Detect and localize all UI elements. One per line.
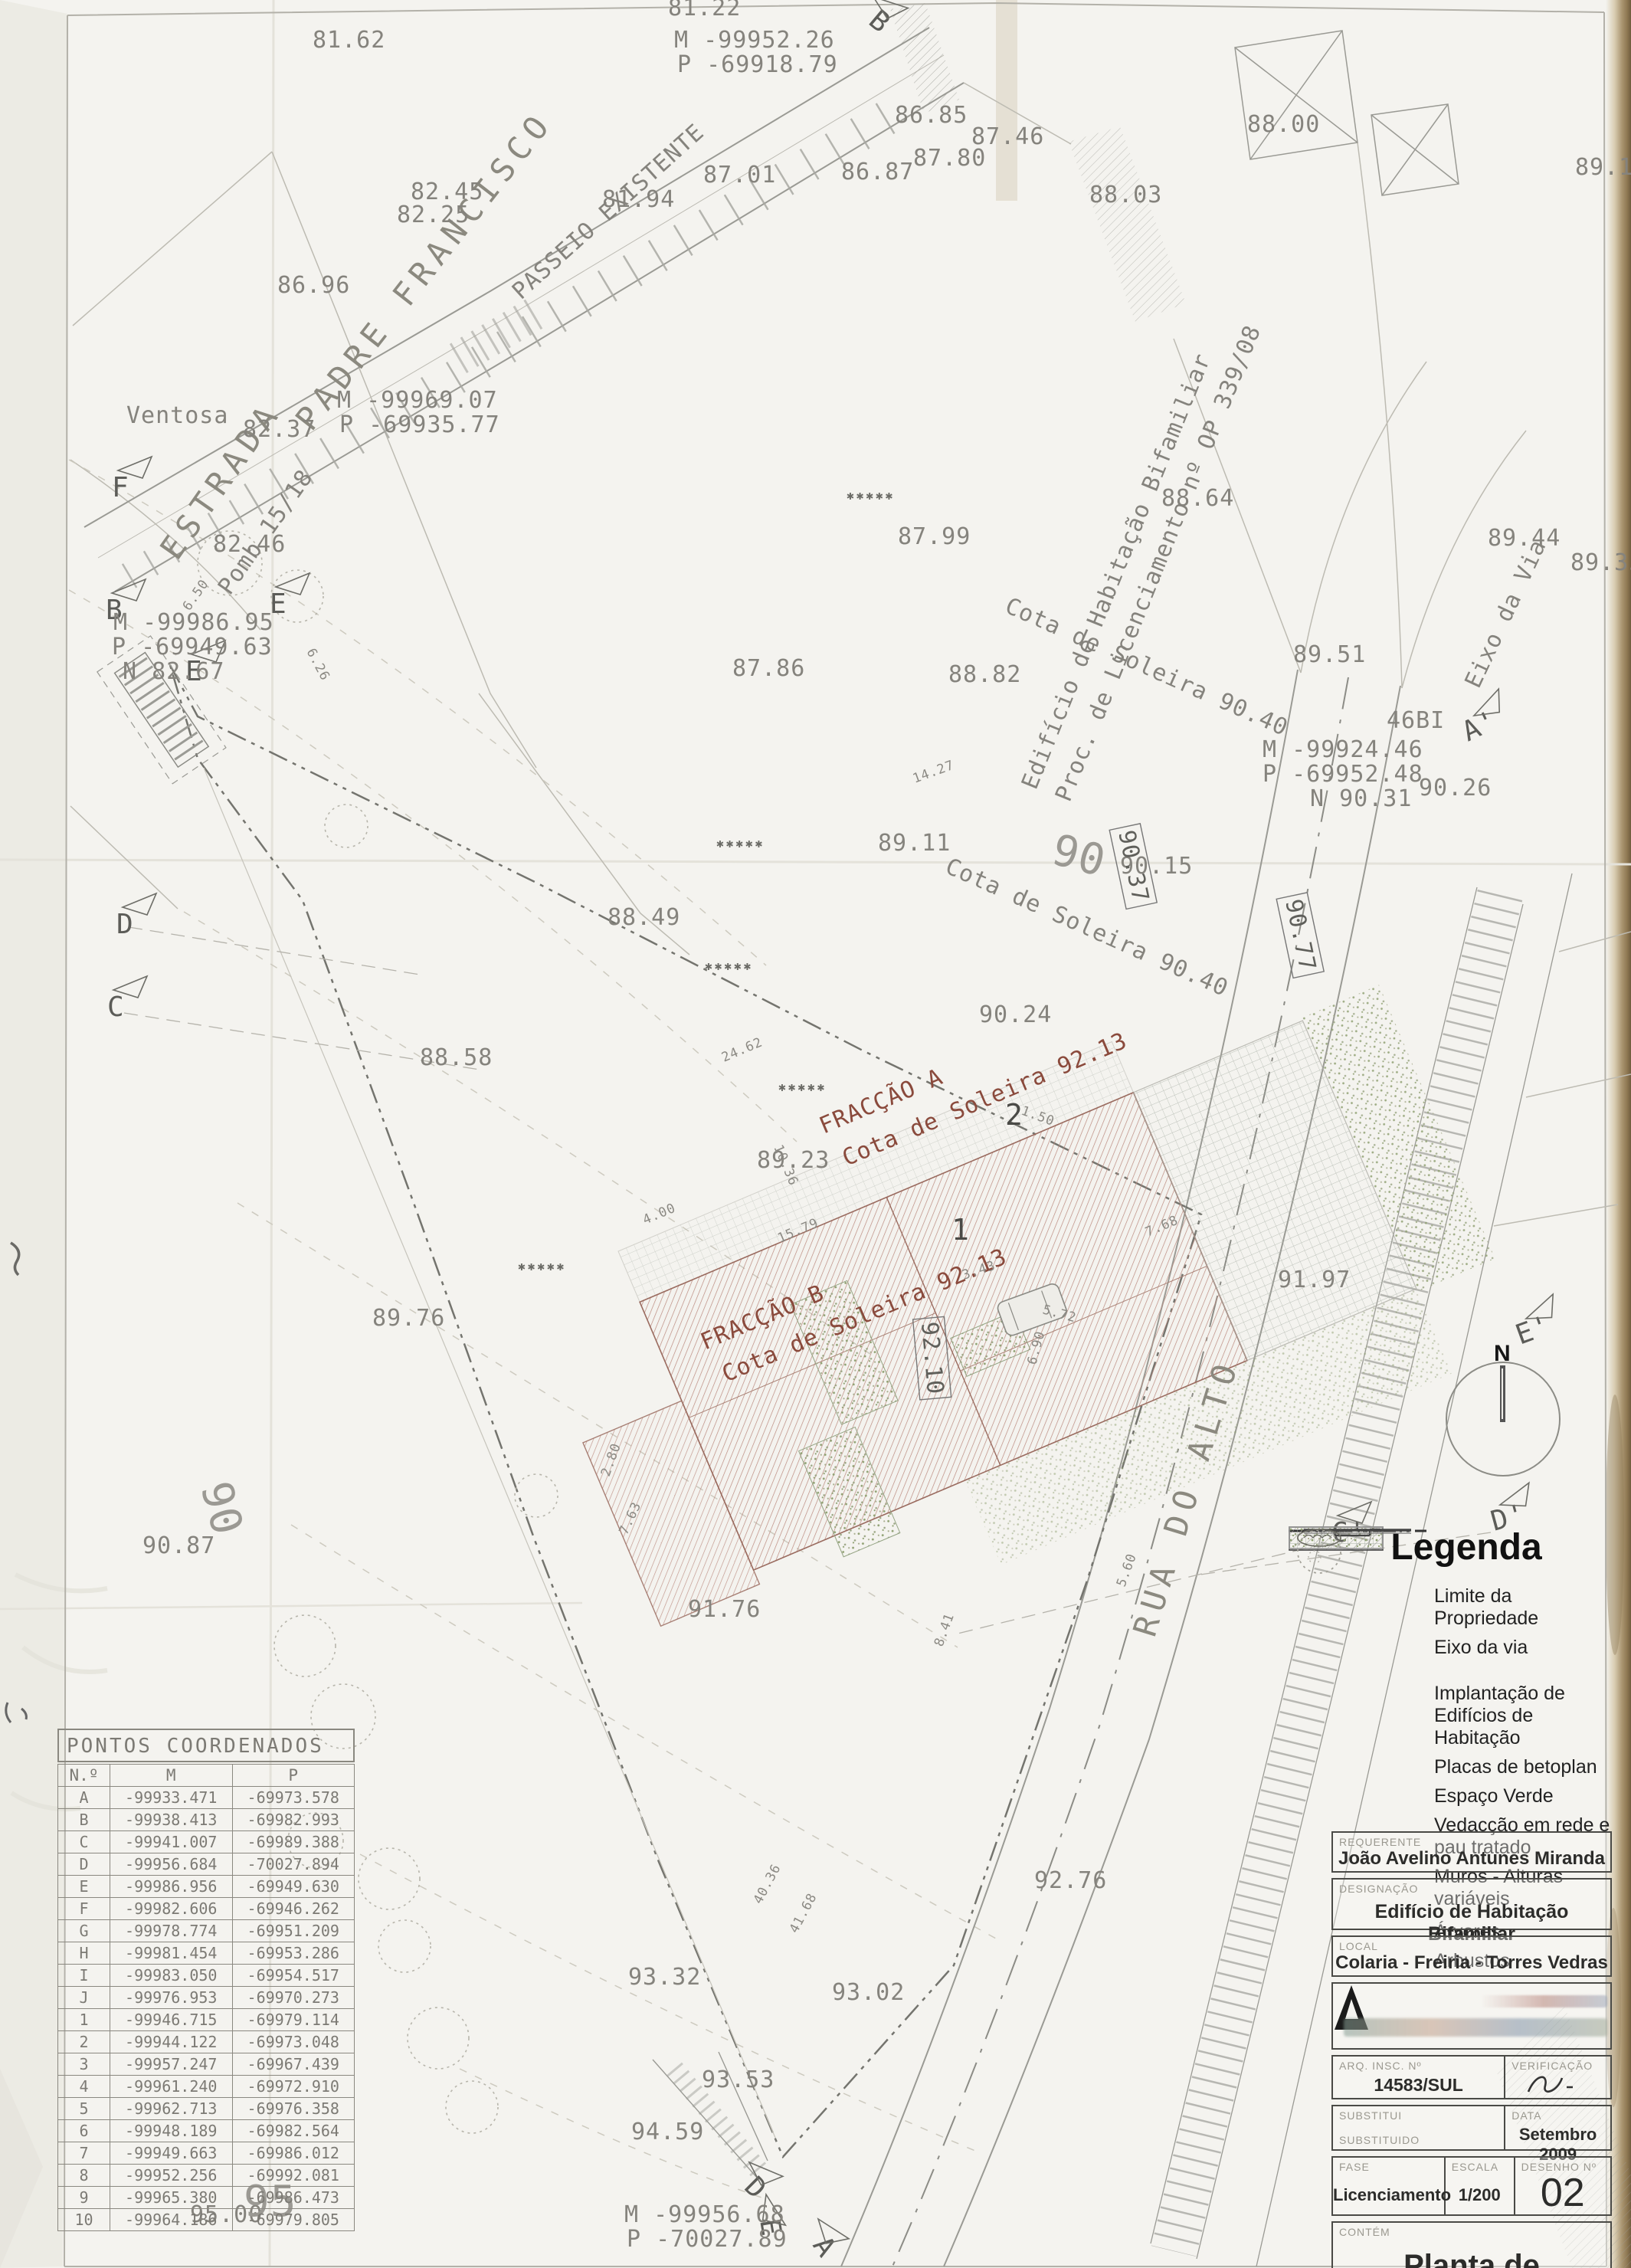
coord-p: -69967.439 (232, 2053, 355, 2076)
coord-m: -99976.953 (110, 1987, 233, 2009)
col-header-p: P (232, 1765, 355, 1787)
plan-label: 2 (1005, 1098, 1023, 1132)
plan-label: 86.85 (895, 102, 968, 129)
legend-item-label: Espaço Verde (1434, 1785, 1554, 1808)
architect-logo-band (1331, 1982, 1612, 2050)
arq-insc-value: 14583/SUL (1333, 2075, 1504, 2096)
plan-label: ✱✱✱✱✱ (518, 1259, 566, 1273)
field-label: CONTÉM (1339, 2226, 1390, 2238)
point-id: G (58, 1920, 110, 1942)
field-label: ARQ. INSC. Nº (1339, 2060, 1422, 2072)
plan-label: 46BI (1387, 707, 1445, 734)
plan-label: 89.76 (372, 1305, 445, 1332)
coordinate-table: PONTOS COORDENADOS N.º M P A-99933.471-6… (57, 1729, 355, 2231)
coord-m: -99964.186 (110, 2209, 233, 2231)
plan-label: 87.86 (732, 655, 805, 682)
table-row: D-99956.684-70027.894 (58, 1853, 355, 1876)
coord-p: -69953.286 (232, 1942, 355, 1965)
plan-label: 81.94 (602, 186, 675, 213)
titleblock-designacao: DESIGNAÇÃO Edifício de Habitação Bifamil… (1331, 1878, 1612, 1930)
table-row: B-99938.413-69982.993 (58, 1809, 355, 1831)
plan-label: P -69918.79 (677, 51, 838, 78)
requerente-value: João Avelino Antunes Miranda (1333, 1848, 1610, 1870)
coord-p: -69982.993 (232, 1809, 355, 1831)
titleblock-local: LOCAL Colaria - Freiria - Torres Vedras (1331, 1935, 1612, 1977)
coord-p: -70027.894 (232, 1853, 355, 1876)
coord-m: -99965.380 (110, 2187, 233, 2209)
coord-m: -99962.713 (110, 2098, 233, 2120)
coord-p: -69949.630 (232, 1876, 355, 1898)
coord-p: -69976.358 (232, 2098, 355, 2120)
coord-m: -99933.471 (110, 1787, 233, 1809)
legend-item-limite: Limite da Propriedade (1289, 1585, 1613, 1630)
plan-label: ✱✱✱✱✱ (716, 836, 765, 850)
point-id: I (58, 1965, 110, 1987)
coord-p: -69982.564 (232, 2120, 355, 2142)
plan-label: 82.45 (411, 179, 483, 205)
point-id: D (58, 1853, 110, 1876)
plan-label: 92.76 (1034, 1867, 1107, 1894)
plan-label: 90.26 (1419, 775, 1492, 801)
table-row: E-99986.956-69949.630 (58, 1876, 355, 1898)
page-title: Planta de Implantação (1333, 2249, 1610, 2268)
coord-m: -99948.189 (110, 2120, 233, 2142)
table-row: 4-99961.240-69972.910 (58, 2076, 355, 2098)
coord-m: -99986.956 (110, 1876, 233, 1898)
plan-label: ✱✱✱✱✱ (778, 1080, 827, 1094)
col-header-m: M (110, 1765, 233, 1787)
point-id: 4 (58, 2076, 110, 2098)
table-header-row: N.º M P (58, 1765, 355, 1787)
coord-p: -69946.262 (232, 1898, 355, 1920)
plan-label: M -99956.68 (624, 2201, 785, 2228)
plan-label: 89.15 (1575, 154, 1631, 181)
plan-label: ✱✱✱✱✱ (705, 959, 753, 973)
scanned-site-plan-page: FBEEDCBA'E'D'C'AEDPADRE FRANCISCOESTRADA… (0, 0, 1631, 2268)
plan-label: 89.35 (1570, 549, 1631, 576)
coord-p: -69951.209 (232, 1920, 355, 1942)
scan-smudge (996, 0, 1017, 201)
coord-p: -69989.388 (232, 1831, 355, 1853)
point-id: E (58, 1876, 110, 1898)
plan-label: 94.59 (631, 2119, 704, 2145)
point-id: 2 (58, 2031, 110, 2053)
table-row: 9-99965.380-69986.473 (58, 2187, 355, 2209)
col-header-numero: N.º (58, 1765, 110, 1787)
coord-m: -99938.413 (110, 1809, 233, 1831)
coord-p: -69992.081 (232, 2165, 355, 2187)
coord-m: -99949.663 (110, 2142, 233, 2165)
legend-item-eixo: Eixo da via (1289, 1637, 1613, 1659)
field-label: LOCAL (1339, 1940, 1378, 1952)
plan-label: 82.25 (397, 202, 470, 228)
titleblock-arq-verif: ARQ. INSC. Nº 14583/SUL VERIFICAÇÃO (1331, 2055, 1612, 2099)
local-value: Colaria - Freiria - Torres Vedras (1333, 1952, 1610, 1974)
point-id: A (58, 1787, 110, 1809)
plan-label: 89.51 (1293, 641, 1366, 668)
legend-item-label: Limite da Propriedade (1434, 1585, 1613, 1630)
field-label: FASE (1339, 2161, 1370, 2173)
plan-label: 88.00 (1247, 111, 1320, 138)
plan-label: 89.11 (878, 830, 951, 857)
plan-label: 93.53 (702, 2066, 775, 2093)
coord-m: -99957.247 (110, 2053, 233, 2076)
table-row: 5-99962.713-69976.358 (58, 2098, 355, 2120)
plan-label: 88.03 (1089, 182, 1162, 208)
field-label: ESCALA (1452, 2161, 1498, 2173)
coord-p: -69970.273 (232, 1987, 355, 2009)
plan-label: 88.82 (948, 661, 1021, 688)
plan-label: P -69952.48 (1263, 761, 1423, 788)
plan-label: P -69949.63 (112, 634, 273, 660)
plan-label: M -99952.26 (674, 27, 835, 54)
plan-label: 88.58 (420, 1044, 493, 1071)
point-id: H (58, 1942, 110, 1965)
plan-label: P -69935.77 (339, 411, 500, 438)
title-block: REQUERENTE João Avelino Antunes Miranda … (1331, 1831, 1612, 2268)
coord-m: -99961.240 (110, 2076, 233, 2098)
coord-m: -99944.122 (110, 2031, 233, 2053)
coord-m: -99981.454 (110, 1942, 233, 1965)
table-row: 2-99944.122-69973.048 (58, 2031, 355, 2053)
point-id: F (58, 1898, 110, 1920)
table-row: I-99983.050-69954.517 (58, 1965, 355, 1987)
plan-label: 90.24 (979, 1001, 1052, 1028)
coordinate-table-title: PONTOS COORDENADOS (57, 1729, 355, 1762)
coord-p: -69973.048 (232, 2031, 355, 2053)
plan-label: 89.44 (1488, 525, 1561, 552)
legend-item-label: Eixo da via (1434, 1637, 1528, 1659)
point-id: 5 (58, 2098, 110, 2120)
plan-label: 87.99 (898, 523, 971, 550)
escala-value: 1/200 (1446, 2185, 1514, 2205)
legend-item-espaco-verde: Espaço Verde (1289, 1785, 1613, 1808)
point-id: 9 (58, 2187, 110, 2209)
coord-m: -99941.007 (110, 1831, 233, 1853)
plan-label: 93.32 (628, 1964, 701, 1991)
section-marker: D (116, 909, 134, 940)
table-row: 7-99949.663-69986.012 (58, 2142, 355, 2165)
plan-label: 91.76 (688, 1596, 761, 1623)
coord-m: -99983.050 (110, 1965, 233, 1987)
section-marker: F (112, 472, 129, 503)
coord-p: -69972.910 (232, 2076, 355, 2098)
table-row: C-99941.007-69989.388 (58, 1831, 355, 1853)
table-row: H-99981.454-69953.286 (58, 1942, 355, 1965)
plan-label: 87.80 (913, 145, 986, 172)
titleblock-requerente: REQUERENTE João Avelino Antunes Miranda (1331, 1831, 1612, 1873)
signature-scribble (1525, 2070, 1579, 2096)
table-row: A-99933.471-69973.578 (58, 1787, 355, 1809)
titleblock-substitui-data: SUBSTITUI SUBSTITUIDO DATA Setembro 2009 (1331, 2105, 1612, 2151)
plan-label: 86.87 (841, 159, 914, 185)
plan-label: N (1494, 1341, 1511, 1366)
coord-p: -69979.805 (232, 2209, 355, 2231)
coord-m: -99946.715 (110, 2009, 233, 2031)
table-row: 10-99964.186-69979.805 (58, 2209, 355, 2231)
titleblock-contem: CONTÉM Planta de Implantação (1331, 2221, 1612, 2268)
plan-label: 82.37 (243, 416, 316, 443)
table-row: J-99976.953-69970.273 (58, 1987, 355, 2009)
point-id: B (58, 1809, 110, 1831)
plan-label: 86.96 (277, 272, 350, 299)
section-marker: C (107, 991, 125, 1023)
point-id: 7 (58, 2142, 110, 2165)
table-row: 8-99952.256-69992.081 (58, 2165, 355, 2187)
coord-p: -69954.517 (232, 1965, 355, 1987)
plan-label: 88.49 (608, 904, 680, 931)
legend-item-betoplan: Placas de betoplan (1289, 1756, 1613, 1778)
table-row: G-99978.774-69951.209 (58, 1920, 355, 1942)
coord-m: -99952.256 (110, 2165, 233, 2187)
point-id: C (58, 1831, 110, 1853)
desenho-number: 02 (1515, 2170, 1610, 2216)
field-label: DATA (1511, 2109, 1541, 2122)
plan-label: ✱✱✱✱✱ (847, 488, 895, 503)
legend-item-implantacao: Implantação de Edifícios de Habitação (1289, 1683, 1613, 1749)
point-id: 8 (58, 2165, 110, 2187)
field-label: SUBSTITUIDO (1339, 2134, 1420, 2146)
point-id: 6 (58, 2120, 110, 2142)
field-label: DESIGNAÇÃO (1339, 1883, 1418, 1895)
point-id: 1 (58, 2009, 110, 2031)
table-row: 6-99948.189-69982.564 (58, 2120, 355, 2142)
plan-label: P -70027.89 (627, 2226, 788, 2253)
plan-label: 1 (951, 1213, 970, 1247)
plan-label: N 82.67 (123, 658, 224, 685)
plan-label: N 90.31 (1310, 785, 1412, 812)
plan-label: M -99924.46 (1263, 736, 1423, 763)
washed-out-stamp (1344, 1995, 1607, 2037)
legend-item-label: Implantação de Edifícios de Habitação (1434, 1683, 1613, 1749)
point-id: J (58, 1987, 110, 2009)
field-label: REQUERENTE (1339, 1836, 1421, 1848)
coord-p: -69973.578 (232, 1787, 355, 1809)
coord-m: -99956.684 (110, 1853, 233, 1876)
plan-label: 81.62 (313, 27, 385, 54)
table-row: 1-99946.715-69979.114 (58, 2009, 355, 2031)
legend-item-label: Placas de betoplan (1434, 1756, 1597, 1778)
point-id: 10 (58, 2209, 110, 2231)
coord-m: -99982.606 (110, 1898, 233, 1920)
point-id: 3 (58, 2053, 110, 2076)
plan-label: 91.97 (1278, 1267, 1351, 1293)
titleblock-fase-escala-desenho: FASE Licenciamento ESCALA 1/200 DESENHO … (1331, 2156, 1612, 2216)
table-row: 3-99957.247-69967.439 (58, 2053, 355, 2076)
plan-label: M -99986.95 (113, 609, 274, 636)
coord-p: -69979.114 (232, 2009, 355, 2031)
table-row: F-99982.606-69946.262 (58, 1898, 355, 1920)
plan-label: 93.02 (832, 1979, 905, 2006)
plan-label: 87.01 (703, 162, 776, 188)
plan-label: Ventosa (126, 402, 228, 429)
coord-p: -69986.473 (232, 2187, 355, 2209)
fase-value: Licenciamento (1333, 2185, 1444, 2205)
plan-label: M -99969.07 (337, 387, 498, 414)
coord-m: -99978.774 (110, 1920, 233, 1942)
coord-p: -69986.012 (232, 2142, 355, 2165)
plan-label: 81.22 (668, 0, 741, 21)
field-label: SUBSTITUI (1339, 2109, 1402, 2122)
field-label: DESENHO Nº (1521, 2161, 1597, 2173)
